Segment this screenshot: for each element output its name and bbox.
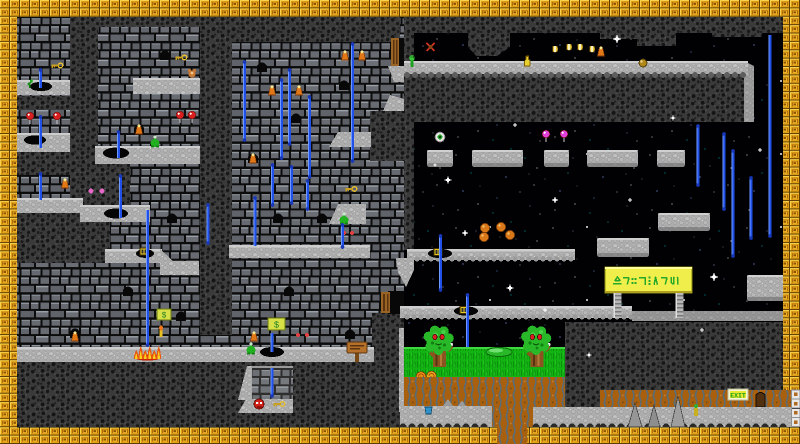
svg-text:$: $ bbox=[274, 321, 280, 331]
svg-text:$: $ bbox=[162, 312, 167, 321]
svg-text:EXIT: EXIT bbox=[730, 393, 746, 400]
